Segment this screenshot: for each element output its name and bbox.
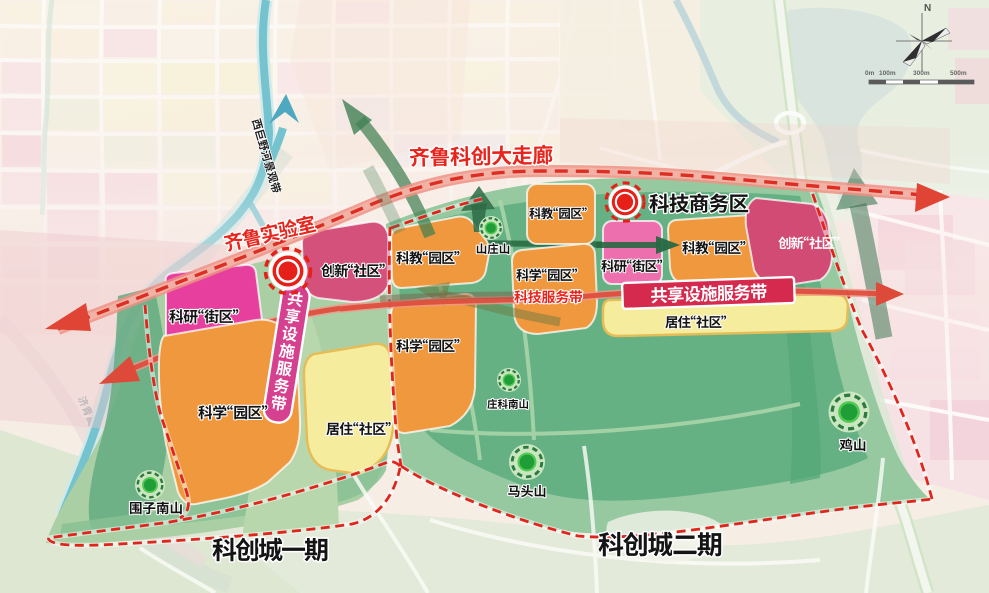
svg-text:100m: 100m: [879, 70, 896, 77]
svg-text:N: N: [924, 3, 931, 14]
svg-text:500m: 500m: [950, 70, 967, 77]
svg-text:300m: 300m: [913, 70, 930, 77]
svg-text:0m: 0m: [865, 70, 875, 77]
